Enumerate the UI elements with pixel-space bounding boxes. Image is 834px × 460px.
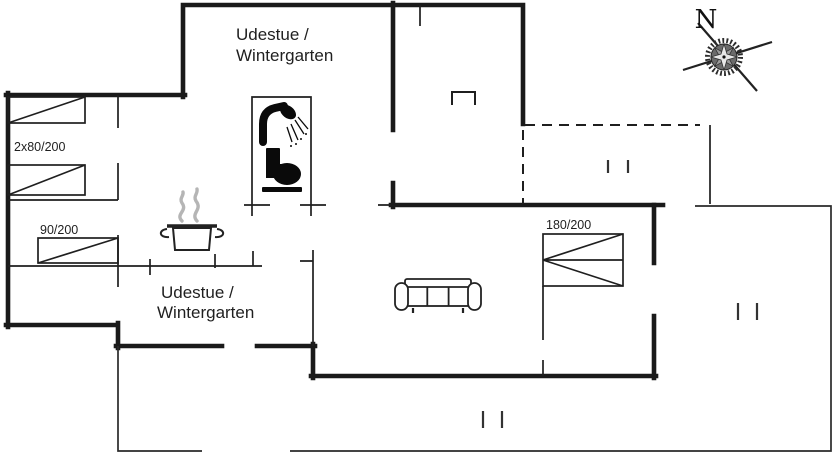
wall-wintergarden-top	[183, 5, 523, 124]
toilet-icon	[262, 148, 302, 192]
wall-bottom-left-step	[6, 323, 222, 348]
label-bed-single: 90/200	[40, 223, 78, 237]
interior-walls	[8, 5, 710, 376]
label-wintergarden-bottom-line1: Udestue /	[161, 283, 234, 302]
shower-icon	[263, 102, 308, 147]
label-bed-double: 180/200	[546, 218, 591, 232]
wall-bottom-mid	[257, 344, 656, 378]
exterior-walls	[6, 3, 663, 378]
chimney-icon	[452, 92, 475, 105]
bed-twin-2	[8, 165, 85, 195]
sofa-icon	[395, 279, 481, 313]
label-wintergarden-top-line2: Wintergarten	[236, 46, 333, 65]
window-tick-icon	[483, 160, 757, 428]
compass-north-label: N	[695, 5, 718, 35]
label-wintergarden-top-line1: Udestue /	[236, 25, 309, 44]
window-ticks-bottom-terrace	[483, 411, 502, 428]
bed-double-180x200	[543, 234, 623, 286]
terrace-right	[290, 206, 831, 451]
terrace-outline	[118, 206, 831, 451]
dashed-boundary	[523, 125, 700, 204]
steam-lines	[180, 189, 198, 221]
bed-single-90x200	[38, 238, 118, 263]
window-ticks-right-terrace	[738, 303, 757, 320]
terrace-bottom-left	[118, 346, 202, 451]
window-ticks-upper-terrace	[608, 160, 628, 173]
label-wintergarden-bottom-line2: Wintergarten	[157, 303, 254, 322]
floor-plan: Udestue / Wintergarten Udestue / Winterg…	[0, 0, 834, 460]
cooking-pot-icon	[161, 189, 223, 250]
label-bed-twin: 2x80/200	[14, 140, 65, 154]
bed-twin-1	[8, 97, 85, 123]
floor-plan-page: Udestue / Wintergarten Udestue / Winterg…	[0, 0, 834, 460]
